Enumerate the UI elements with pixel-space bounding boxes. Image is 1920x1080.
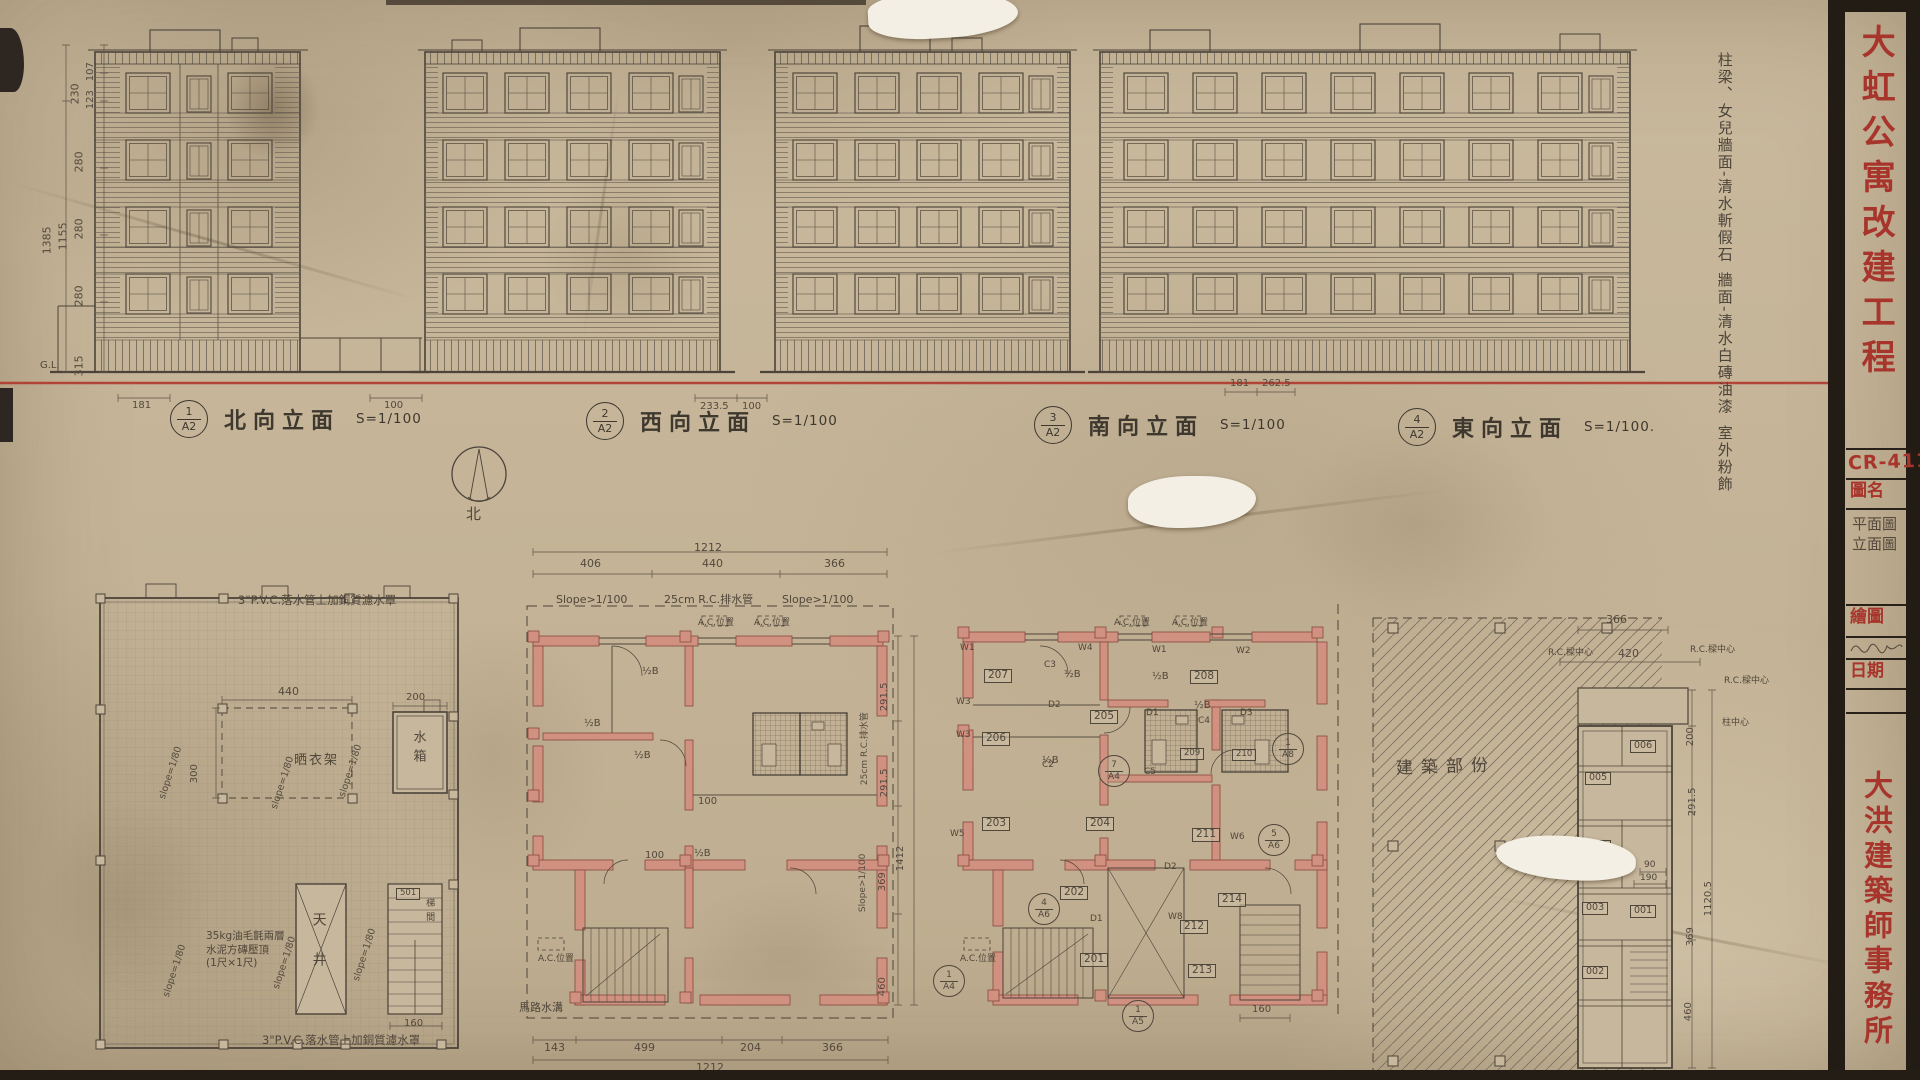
dim-label: 123 xyxy=(85,90,96,109)
title-block-right-border xyxy=(1906,0,1920,1080)
dim-label: 280 xyxy=(74,218,86,239)
dim-label: 366 xyxy=(822,1042,843,1054)
dim-label: 406 xyxy=(580,558,601,570)
marker-sheet: A2 xyxy=(1410,429,1425,440)
section-marker: 1A5 xyxy=(1122,1000,1154,1032)
room-number: 211 xyxy=(1192,828,1220,842)
dim-label: 160 xyxy=(1252,1004,1271,1015)
stair-label: 梯間 xyxy=(424,898,434,926)
room-number: 209 xyxy=(1180,748,1204,760)
marker-number: 4 xyxy=(1414,414,1421,425)
architect-firm-name: 大洪建築師事務所 xyxy=(1860,770,1892,1070)
room-number: 203 xyxy=(982,817,1010,831)
elevation-scale: S=1/100 xyxy=(1220,417,1286,433)
drawing-name-line2: 立面圖 xyxy=(1852,534,1897,554)
finish-note-1: 柱梁、女兒牆面-清水斬假石 xyxy=(1716,52,1733,263)
marker-sheet: A6 xyxy=(1268,842,1280,851)
marker-number: 1 xyxy=(1135,1006,1141,1015)
finish-note-2: 牆面-清水白磚油漆 xyxy=(1716,272,1733,415)
marker-sheet: A5 xyxy=(1132,1018,1144,1027)
elevation-title: 北向立面 xyxy=(224,403,340,435)
marker-sheet: A2 xyxy=(182,421,197,432)
marker-sheet: A6 xyxy=(1038,911,1050,920)
drawing-number: CR-411 xyxy=(1848,451,1920,475)
marker-sheet: A8 xyxy=(1282,751,1294,760)
wall-thickness-label: ½B xyxy=(1194,700,1211,711)
ac-position-label: A.C.位置 xyxy=(1172,618,1208,628)
marker-number: 3 xyxy=(1050,412,1057,423)
exterior-finish-notes: 柱梁、女兒牆面-清水斬假石 牆面-清水白磚油漆 室外粉飾 xyxy=(1716,52,1733,372)
section-marker: 1A8 xyxy=(1272,733,1304,765)
beam-centerline-note: R.C.樑中心 xyxy=(1690,645,1735,655)
dim-label: 233.5 xyxy=(700,401,729,412)
dim-label: 200 xyxy=(1685,727,1696,746)
date-label: 日期 xyxy=(1850,662,1902,681)
marker-number: 5 xyxy=(1271,830,1277,839)
project-title: 大虹公寓改建工程 xyxy=(1856,24,1894,434)
detail-marker: 1A2 xyxy=(170,400,208,438)
north-compass xyxy=(452,447,506,502)
dim-label: 1212 xyxy=(694,542,722,554)
dim-label: 107 xyxy=(85,62,96,81)
dim-label: 440 xyxy=(702,558,723,570)
room-number: 501 xyxy=(396,888,420,900)
wall-thickness-label: ½B xyxy=(634,750,651,761)
dim-label: 204 xyxy=(740,1042,761,1054)
marker-number: 1 xyxy=(1285,739,1291,748)
dim-label: 460 xyxy=(1683,1002,1694,1021)
marker-number: 4 xyxy=(1041,899,1047,908)
dim-label: 143 xyxy=(544,1042,565,1054)
window-label: W3 xyxy=(956,730,971,740)
wall-thickness-label: ½B xyxy=(1064,669,1081,680)
room-number: 001 xyxy=(1630,905,1656,918)
room-number: 206 xyxy=(982,732,1010,746)
room-number: 006 xyxy=(1630,740,1656,753)
dim-label: 460 xyxy=(877,977,888,996)
compass-north-label: 北 xyxy=(466,506,481,523)
marker-sheet: A2 xyxy=(1046,427,1061,438)
dim-label: 366 xyxy=(824,558,845,570)
column-centerline-note: 柱中心 xyxy=(1722,718,1749,728)
elevation-south-drawing xyxy=(760,26,1085,372)
wall-thickness-label: ½B xyxy=(1152,671,1169,682)
coping-note: 35kg油毛氈兩層 水泥方磚壓頂 (1尺×1尺) xyxy=(206,930,326,971)
marker-number: 1 xyxy=(946,971,952,980)
dim-label: 90 xyxy=(1644,860,1655,870)
gutter-note: 馬路水溝 xyxy=(519,1002,563,1014)
door-label: D2 xyxy=(1164,862,1177,872)
ac-position-label: A.C.位置 xyxy=(538,954,574,964)
title-block-divider xyxy=(1846,508,1906,510)
wall-thickness-label: ½B xyxy=(584,718,601,729)
slope-note: Slope>1/100 xyxy=(858,854,868,912)
window-label: W4 xyxy=(1078,643,1093,653)
slope-note: Slope>1/100 xyxy=(556,594,627,606)
dim-label: 499 xyxy=(634,1042,655,1054)
dim-label: 262.5 xyxy=(1262,378,1291,389)
dim-label: 230 xyxy=(70,83,82,104)
room-number: 207 xyxy=(984,669,1012,683)
marker-number: 1 xyxy=(186,406,193,417)
drying-rack-label: 晒衣架 xyxy=(294,754,339,769)
room-number: 208 xyxy=(1190,670,1218,684)
dim-label: 280 xyxy=(74,151,86,172)
dim-label: 291.5 xyxy=(879,683,890,712)
sheet-top-edge xyxy=(386,0,866,5)
title-block-divider xyxy=(1846,688,1906,690)
marker-sheet: A4 xyxy=(1108,773,1120,782)
dim-label: 1155 xyxy=(58,222,70,250)
room-number: 003 xyxy=(1582,902,1608,915)
section-marker: 4A6 xyxy=(1028,893,1060,925)
elevation-scale: S=1/100 xyxy=(356,411,422,427)
room-number: 210 xyxy=(1232,749,1256,761)
drawing-name-line1: 平面圖 xyxy=(1852,514,1897,534)
dim-label: 1385 xyxy=(42,226,54,254)
ground-line-label: G.L. xyxy=(40,360,60,371)
section-marker: 1A4 xyxy=(933,965,965,997)
elevation-title: 東向立面 xyxy=(1452,411,1568,443)
elevation-scale: S=1/100 xyxy=(772,413,838,429)
elevation-label-4: 4A2 東向立面 S=1/100. xyxy=(1398,408,1655,446)
section-marker: 5A6 xyxy=(1258,824,1290,856)
title-block-divider xyxy=(1846,658,1906,660)
door-label: D2 xyxy=(1048,700,1061,710)
column-label: C4 xyxy=(1198,716,1210,726)
elevation-north-drawing xyxy=(50,30,430,372)
window-label: W2 xyxy=(1236,646,1251,656)
marker-number: 7 xyxy=(1111,761,1117,770)
dim-label: 369 xyxy=(877,872,888,891)
pipe-note-top: 3"P.V.C.落水管上加銅質濾水罩 xyxy=(238,594,396,607)
window-label: W1 xyxy=(1152,645,1167,655)
dim-label: 291.5 xyxy=(1687,788,1698,817)
drain-note: 25cm R.C.排水管 xyxy=(860,712,870,785)
room-number: 201 xyxy=(1080,953,1108,967)
dim-label: 420 xyxy=(1618,648,1639,660)
window-label: W1 xyxy=(960,643,975,653)
title-block-left-border xyxy=(1828,0,1845,1080)
ac-position-label: A.C.位置 xyxy=(698,618,734,628)
drain-note: 25cm R.C.排水管 xyxy=(664,594,753,606)
elevation-title: 西向立面 xyxy=(640,405,756,437)
room-number: 005 xyxy=(1585,772,1611,785)
dim-label: 200 xyxy=(406,692,425,703)
coping-note-2: 水泥方磚壓頂 xyxy=(206,944,326,958)
title-block-divider xyxy=(1846,712,1906,714)
dim-label: 300 xyxy=(189,764,200,783)
room-number: 214 xyxy=(1218,893,1246,907)
window-label: W3 xyxy=(956,697,971,707)
door-label: D1 xyxy=(1146,708,1159,718)
sheet-bottom-edge xyxy=(0,1070,1920,1080)
dim-label: 291.5 xyxy=(879,769,890,798)
drawing-linework xyxy=(0,0,1920,1080)
beam-centerline-note: R.C.樑中心 xyxy=(1548,648,1593,658)
beam-centerline-note: R.C.樑中心 xyxy=(1724,676,1769,686)
section-marker: 7A4 xyxy=(1098,755,1130,787)
drawn-by-label: 繪圖 xyxy=(1850,608,1902,627)
wall-thickness-label: ½B xyxy=(694,848,711,859)
marker-sheet: A4 xyxy=(943,983,955,992)
room-number: 204 xyxy=(1086,817,1114,831)
dim-label: 100 xyxy=(742,401,761,412)
drafter-signature-scribble xyxy=(1849,639,1903,657)
sheet-edge-mark xyxy=(0,388,13,442)
title-block-top-border xyxy=(1845,0,1906,12)
room-number: 202 xyxy=(1060,886,1088,900)
wall-thickness-label: ½B xyxy=(642,666,659,677)
elevation-scale: S=1/100. xyxy=(1584,419,1655,435)
ac-position-label: A.C.位置 xyxy=(754,618,790,628)
blueprint-sheet: 1A2 北向立面 S=1/100 2A2 西向立面 S=1/100 3A2 南向… xyxy=(0,0,1920,1080)
detail-marker: 4A2 xyxy=(1398,408,1436,446)
elevation-west-drawing xyxy=(410,28,735,372)
title-block-divider xyxy=(1846,636,1906,638)
water-tank-label: 水箱 xyxy=(410,730,425,768)
elevation-title: 南向立面 xyxy=(1088,409,1204,441)
dim-label: 440 xyxy=(278,686,299,698)
dim-label: 190 xyxy=(1640,873,1657,883)
window-label: W5 xyxy=(950,829,965,839)
door-label: D3 xyxy=(1240,708,1253,718)
dim-label: 369 xyxy=(1685,927,1696,946)
dim-label: 181 xyxy=(1230,378,1249,389)
room-number: 212 xyxy=(1180,920,1208,934)
detail-marker: 2A2 xyxy=(586,402,624,440)
dim-label: 315 xyxy=(74,355,86,376)
ac-position-label: A.C.位置 xyxy=(1114,618,1150,628)
title-block-divider xyxy=(1846,604,1906,606)
dim-label: 280 xyxy=(74,285,86,306)
room-number: 213 xyxy=(1188,964,1216,978)
ac-position-label: A.C.位置 xyxy=(960,954,996,964)
title-block-divider xyxy=(1846,478,1906,480)
elevation-east-drawing xyxy=(1088,24,1645,372)
dim-label: 366 xyxy=(1606,614,1627,626)
drawing-name-label: 圖名 xyxy=(1850,482,1902,501)
window-label: W8 xyxy=(1168,912,1183,922)
coping-note-1: 35kg油毛氈兩層 xyxy=(206,930,326,944)
window-label: W6 xyxy=(1230,832,1245,842)
elevation-label-3: 3A2 南向立面 S=1/100 xyxy=(1034,406,1286,444)
dim-label: 1120.5 xyxy=(1703,881,1714,916)
marker-number: 2 xyxy=(602,408,609,419)
drawing-name-value: 平面圖 立面圖 xyxy=(1852,514,1897,555)
detail-marker: 3A2 xyxy=(1034,406,1072,444)
coping-note-3: (1尺×1尺) xyxy=(206,957,326,971)
building-portion-label: 建築部份 xyxy=(1396,756,1497,779)
dim-label: 181 xyxy=(132,400,151,411)
marker-sheet: A2 xyxy=(598,423,613,434)
dim-label: 100 xyxy=(698,796,717,807)
finish-note-3: 室外粉飾 xyxy=(1716,425,1733,493)
room-number: 205 xyxy=(1090,710,1118,724)
column-label: C3 xyxy=(1044,660,1056,670)
dim-label: 1412 xyxy=(895,846,906,871)
dim-label: 100 xyxy=(645,850,664,861)
dim-label: 100 xyxy=(384,400,403,411)
pipe-note-bottom: 3"P.V.C.落水管上加銅質濾水罩 xyxy=(262,1034,420,1047)
dim-label: 160 xyxy=(404,1018,423,1029)
column-label: C5 xyxy=(1144,767,1156,777)
room-number: 002 xyxy=(1582,966,1608,979)
wall-thickness-label: ½B xyxy=(1042,755,1059,766)
slope-note: Slope>1/100 xyxy=(782,594,853,606)
door-label: D1 xyxy=(1090,914,1103,924)
plan-c-drawing xyxy=(958,604,1338,1022)
